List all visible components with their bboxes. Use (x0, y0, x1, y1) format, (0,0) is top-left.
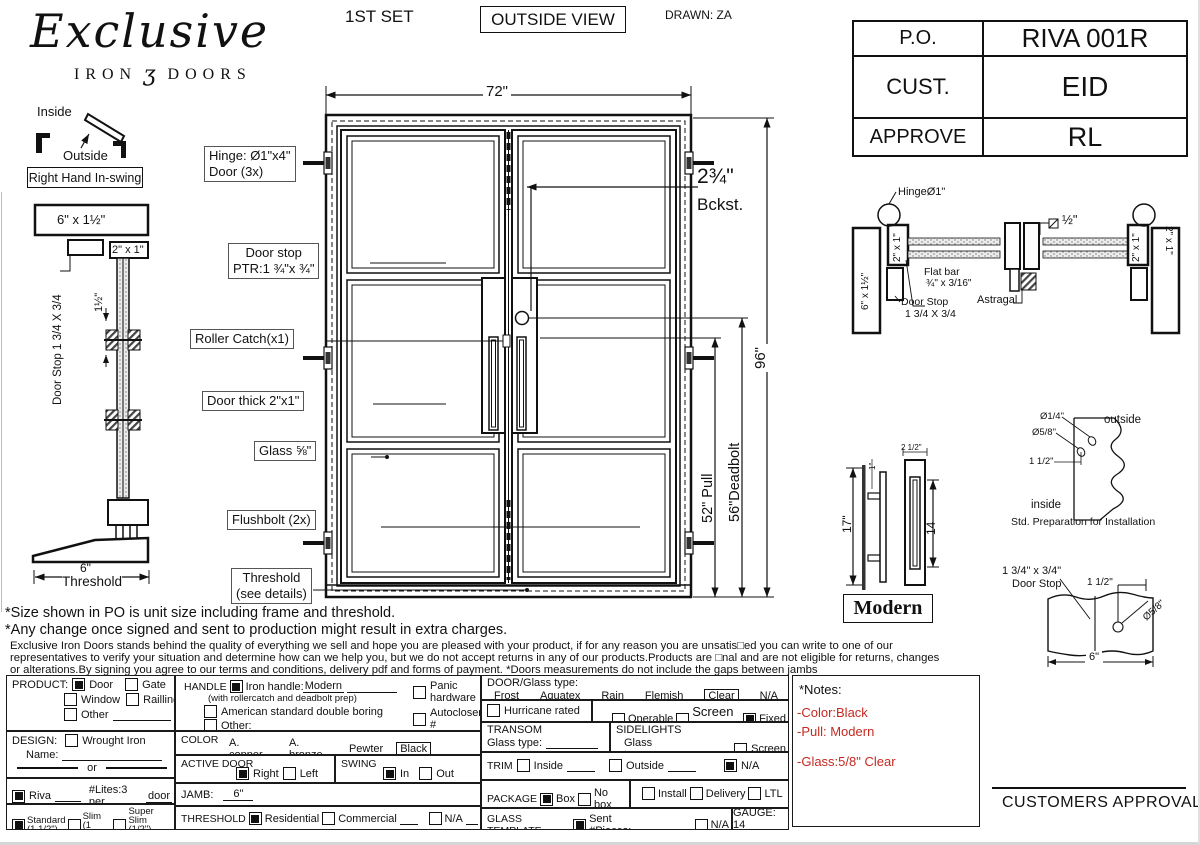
cust-label: CUST. (853, 56, 983, 118)
jamb-value: 6" (223, 788, 253, 801)
profile-standard-checkbox[interactable] (12, 819, 25, 831)
threshold-na-checkbox[interactable] (429, 812, 442, 825)
handle-other-checkbox[interactable] (204, 719, 217, 731)
deadbolt-height-dim: 56"Deadbolt (727, 443, 743, 522)
threshold-na-label: N/A (445, 813, 463, 825)
autocloser-checkbox[interactable] (413, 713, 426, 726)
sent-pieces-blank[interactable] (653, 819, 684, 830)
elevation-height-dim: 96" (752, 344, 769, 372)
prep-caption: Std. Preparation for Installation (1011, 516, 1155, 528)
color-selected[interactable]: Black (396, 742, 431, 755)
head-hinge-label: HingeØ1" (898, 186, 945, 198)
handle-iron-checkbox[interactable] (230, 680, 243, 693)
glass-template-na-checkbox[interactable] (695, 819, 708, 831)
riva-label: Riva (29, 790, 51, 802)
disclaimer-para-line1: Exclusive Iron Doors stands behind the q… (10, 640, 893, 652)
signature-line[interactable] (992, 787, 1186, 789)
form-cell-glass-template: GLASS TEMPLATE Sent #Pieces: N/A (481, 808, 732, 830)
form-cell-transom: TRANSOM Glass type: (481, 722, 610, 752)
pull-standoff-label: 1" (868, 463, 877, 470)
sidelights-screen-label: Screen (751, 743, 786, 752)
head-gap-dim: ½" (1062, 212, 1077, 227)
profile-superslim-label: Super Slim (128, 806, 153, 826)
operable-checkbox[interactable] (612, 713, 625, 723)
fixed-label: Fixed (759, 713, 786, 722)
screen-or-checkbox[interactable] (676, 713, 689, 723)
glass-callout: Glass ⅝" (254, 441, 316, 461)
threshold-callout: Threshold (see details) (231, 568, 312, 604)
form-cell-design: DESIGN: Wrought Iron Name: or (6, 731, 175, 778)
form-cell-riva: Riva #Lites:3 per door (6, 778, 175, 804)
handle-american-checkbox[interactable] (204, 705, 217, 718)
trim-inside-blank[interactable] (567, 760, 595, 772)
flat-bar-label-line2: ¾" x 3/16" (926, 278, 971, 289)
profile-head-dim: 6" x 1½" (57, 212, 105, 227)
view-label-box: OUTSIDE VIEW (480, 6, 626, 33)
profile-slim-checkbox[interactable] (68, 819, 81, 831)
prep-hole-small-label: Ø1/4" (1040, 411, 1064, 422)
or-divider-left (17, 767, 78, 768)
glass-opt-flemish: Flemish (645, 690, 684, 700)
style-name-box: Modern (843, 594, 933, 623)
form-cell-sidelights: SIDELIGHTS Glass type: Screen (610, 722, 789, 752)
cust-value: EID (983, 56, 1187, 118)
form-cell-shipping: Install Delivery LTL (630, 780, 789, 808)
disclaimer-line1: *Size shown in PO is unit size including… (5, 605, 395, 621)
pull-height-dim: 52" Pull (700, 474, 716, 523)
profile-superslim-checkbox[interactable] (113, 819, 126, 831)
fixed-checkbox[interactable] (743, 713, 756, 723)
product-other-label: Other (81, 709, 109, 721)
profile-superslim-sub: (1/2") SDL (128, 824, 151, 830)
po-label: P.O. (853, 21, 983, 56)
logo-subtitle: IRONʒDOORS (74, 62, 252, 87)
flat-bar-label-line1: Flat bar (924, 266, 960, 278)
glass-template-na-label: N/A (711, 819, 729, 830)
transom-glass-label: Glass type: (487, 737, 542, 749)
form-cell-swing: SWING In Out (335, 755, 481, 783)
form-cell-trim: TRIM Inside Outside N/A (481, 752, 789, 780)
profile-standard-sub: (1 1/2") (27, 824, 58, 830)
form-cell-active-door: ACTIVE DOOR Right Left (175, 755, 335, 783)
color-opt-copper: A. copper (229, 737, 276, 755)
note-glass: -Glass:5/8" Clear (797, 754, 979, 769)
riva-lites-value: door (146, 790, 172, 803)
product-other-checkbox[interactable] (64, 708, 77, 721)
package-box-checkbox[interactable] (540, 793, 553, 806)
threshold-residential-label: Residential (265, 813, 319, 825)
prep-hole-large-label: Ø5/8" (1032, 427, 1056, 438)
view-label: OUTSIDE VIEW (491, 10, 615, 30)
design-or-label: or (87, 762, 97, 774)
form-cell-color: COLOR A. copper A. bronze Pewter Black (175, 731, 481, 755)
handle-other-blank[interactable] (256, 720, 334, 732)
design-label: DESIGN: (12, 735, 57, 747)
product-door-checkbox[interactable] (72, 678, 85, 691)
ltl-label: LTL (764, 788, 782, 800)
hinge-callout: Hinge: Ø1"x4" Door (3x) (204, 146, 296, 182)
hinge-callout-line1: Hinge: Ø1"x4" (209, 148, 291, 164)
swing-label: SWING (341, 758, 377, 770)
package-label: PACKAGE (487, 793, 537, 805)
trim-inside-label: Inside (534, 760, 563, 772)
install-label: Install (658, 788, 687, 800)
handle-iron-value: Modern (303, 680, 344, 693)
trim-outside-blank[interactable] (668, 760, 696, 772)
swing-caption-box: Right Hand In-swing (27, 167, 143, 188)
form-cell-gauge: GAUGE: 14 (732, 808, 789, 830)
product-railing-checkbox[interactable] (126, 693, 139, 706)
door-elevation-drawing (300, 80, 800, 610)
head-right-jamb-dim: 2" x 1" (1163, 226, 1174, 255)
install-checkbox[interactable] (642, 787, 655, 800)
color-label: COLOR (181, 734, 218, 746)
form-cell-package: PACKAGE Box No box (481, 780, 630, 808)
panic-label: Panic hardware (430, 680, 481, 704)
head-right-stile-dim: 2" x 1" (1131, 233, 1142, 262)
profile-door-stop-label: Door Stop 1 3/4 X 3/4 (52, 294, 64, 405)
handle-label: HANDLE (184, 681, 227, 693)
delivery-label: Delivery (706, 788, 746, 800)
order-drawing-page: Exclusive IRONʒDOORS 1ST SET OUTSIDE VIE… (0, 0, 1200, 845)
sidelights-screen-checkbox[interactable] (734, 743, 747, 753)
elevation-width-dim: 72" (483, 83, 511, 100)
stop-size-label: 1 3/4" x 3/4" (1002, 565, 1061, 577)
backset-dim: 2¾" (697, 165, 734, 189)
swing-out-checkbox[interactable] (419, 767, 432, 780)
form-cell-glass-type: DOOR/Glass type: Frost Aquatex Rain Flem… (481, 675, 789, 700)
prep-outside-label: outside (1104, 414, 1141, 426)
design-wrought-checkbox[interactable] (65, 734, 78, 747)
door-stop-callout-line1: Door stop (233, 245, 314, 261)
glass-opt-rain: Rain (601, 690, 624, 700)
active-right-label: Right (253, 768, 279, 780)
product-other-blank[interactable] (113, 709, 171, 721)
glass-type-label: DOOR/Glass type: (487, 677, 578, 689)
sidelights-glass-label: Glass type: (624, 737, 677, 752)
product-window-checkbox[interactable] (64, 693, 77, 706)
sent-pieces-label: Sent #Pieces: (589, 813, 650, 830)
swing-inside-label: Inside (37, 104, 72, 119)
astragal-label: Astragal (977, 294, 1017, 306)
hurricane-label: Hurricane rated (504, 705, 580, 717)
glass-opt-na: N/A (760, 690, 778, 700)
product-door-label: Door (89, 679, 113, 691)
active-left-label: Left (300, 768, 318, 780)
package-box-label: Box (556, 793, 575, 805)
swing-in-label: In (400, 768, 409, 780)
swing-in-checkbox[interactable] (383, 767, 396, 780)
head-door-stop-line2: 1 3/4 X 3/4 (905, 308, 956, 320)
handle-american-label: American standard double boring (221, 706, 383, 718)
roller-catch-callout: Roller Catch(x1) (190, 329, 294, 349)
notes-box: *Notes: -Color:Black -Pull: Modern -Glas… (792, 675, 980, 827)
backset-label: Bckst. (697, 195, 743, 215)
drawn-by-label: DRAWN: ZA (665, 8, 732, 22)
form-cell-profile: Standard (1 1/2") Slim (1 1/4") Super Sl… (6, 804, 175, 830)
threshold-commercial-checkbox[interactable] (322, 812, 335, 825)
panic-checkbox[interactable] (413, 686, 426, 699)
threshold-na-blank[interactable] (466, 813, 478, 825)
prep-offset-label: 1 1/2" (1029, 456, 1054, 467)
logo-sub-right: DOORS (168, 66, 252, 84)
logo-ampersand-glyph: ʒ (143, 62, 161, 87)
threshold-width-dim: 6" (80, 561, 91, 575)
trim-na-checkbox[interactable] (724, 759, 737, 772)
design-name-blank[interactable] (62, 749, 162, 761)
or-divider-right (106, 767, 167, 768)
po-value: RIVA 001R (983, 21, 1187, 56)
set-label: 1ST SET (345, 7, 414, 27)
stop-width-dim: 6" (1086, 651, 1102, 663)
trim-inside-checkbox[interactable] (517, 759, 530, 772)
jamb-label: JAMB: (181, 789, 213, 801)
pull-height-label: 17" (840, 515, 854, 533)
swing-out-label: Out (436, 768, 454, 780)
form-cell-hurricane: Hurricane rated (481, 700, 592, 722)
transom-label: TRANSOM (487, 724, 542, 736)
product-label: PRODUCT: (12, 679, 68, 691)
notes-title: *Notes: (799, 682, 979, 697)
order-table: P.O. RIVA 001R CUST. EID APPROVE RL (852, 20, 1188, 157)
glass-opt-aquatex: Aquatex (540, 690, 580, 700)
active-left-checkbox[interactable] (283, 767, 296, 780)
door-thickness-callout: Door thick 2"x1" (202, 391, 304, 411)
logo-script: Exclusive (30, 4, 269, 58)
swing-outside-label: Outside (63, 148, 108, 163)
product-window-label: Window (81, 694, 120, 706)
threshold-commercial-blank[interactable] (400, 813, 418, 825)
product-gate-label: Gate (142, 679, 166, 691)
stop-name-label: Door Stop (1012, 578, 1062, 590)
package-nobox-checkbox[interactable] (578, 793, 591, 806)
threshold-callout-line1: Threshold (236, 570, 307, 586)
package-nobox-label: No box (594, 787, 627, 808)
design-wrought-label: Wrought Iron (82, 735, 145, 747)
transom-glass-blank[interactable] (546, 737, 598, 749)
handle-other-label: Other: (221, 720, 252, 732)
form-cell-jamb: JAMB: 6" (175, 783, 481, 806)
riva-lites-label: #Lites:3 per (89, 784, 142, 804)
ltl-checkbox[interactable] (748, 787, 761, 800)
style-name: Modern (854, 597, 923, 620)
sidelights-glass-blank[interactable] (681, 743, 722, 752)
product-railing-label: Railling (143, 694, 175, 706)
handle-iron-label: Iron handle: (246, 681, 304, 693)
note-color: -Color:Black (797, 705, 979, 720)
color-opt-pewter: Pewter (349, 743, 383, 755)
note-pull: -Pull: Modern (797, 724, 979, 739)
glass-template-label: GLASS TEMPLATE (487, 813, 570, 830)
threshold-callout-line2: (see details) (236, 586, 307, 602)
door-stop-callout: Door stop PTR:1 ¾"x ¾" (228, 243, 319, 279)
handle-note: (with rollercatch and deadbolt prep) (208, 693, 357, 704)
customers-approval-label: CUSTOMERS APPROVAL (1002, 794, 1200, 812)
door-stop-callout-line2: PTR:1 ¾"x ¾" (233, 261, 314, 277)
head-left-stile-dim: 2" x 1" (892, 233, 903, 262)
autocloser-label: Autocloser # (430, 707, 481, 731)
trim-na-label: N/A (741, 760, 759, 772)
profile-stop-gap-dim: 1½" (93, 293, 105, 312)
sidelights-label: SIDELIGHTS (616, 724, 681, 736)
hinge-callout-line2: Door (3x) (209, 164, 291, 180)
sent-pieces-checkbox[interactable] (573, 819, 586, 831)
logo-sub-left: IRON (74, 66, 137, 84)
operable-label: Operable (628, 713, 673, 722)
color-blank[interactable] (444, 743, 478, 755)
hurricane-checkbox[interactable] (487, 704, 500, 717)
glass-opt-frost: Frost (494, 690, 519, 700)
active-right-checkbox[interactable] (236, 767, 249, 780)
delivery-checkbox[interactable] (690, 787, 703, 800)
gauge-label: GAUGE: 14 (733, 808, 788, 830)
trim-outside-label: Outside (626, 760, 664, 772)
side-profile-drawing (10, 195, 165, 603)
product-gate-checkbox[interactable] (125, 678, 138, 691)
prep-inside-label: inside (1031, 499, 1061, 511)
design-name-label: Name: (26, 749, 58, 761)
form-cell-threshold: THRESHOLD Residential Commercial N/A (175, 806, 481, 830)
trim-label: TRIM (487, 760, 513, 772)
handle-iron-blank[interactable] (347, 681, 397, 693)
page-edge-line (1, 192, 2, 612)
approve-value: RL (983, 118, 1187, 156)
form-cell-operable: Operable Screen or Fixed (592, 700, 789, 722)
swing-caption: Right Hand In-swing (29, 171, 142, 185)
form-cell-handle: HANDLE Iron handle:Modern (with rollerca… (175, 675, 481, 731)
profile-stile-dim: 2" x 1" (112, 244, 144, 256)
screen-or-label: Screen or (692, 704, 740, 722)
flushbolt-callout: Flushbolt (2x) (227, 510, 316, 530)
disclaimer-line2: *Any change once signed and sent to prod… (5, 622, 507, 638)
head-door-stop-line1: Door Stop (901, 296, 948, 308)
head-left-jamb-dim: 6" x 1½" (860, 273, 871, 310)
glass-selected[interactable]: Clear (704, 689, 738, 700)
threshold-commercial-label: Commercial (338, 813, 397, 825)
pull-slot-label: 14 (924, 522, 938, 535)
form-cell-product: PRODUCT: Door Gate Window Railling Other (6, 675, 175, 731)
color-opt-bronze: A. bronze (289, 737, 336, 755)
threshold-label: THRESHOLD (181, 813, 246, 825)
pull-width-label: 2 1/2" (901, 443, 922, 452)
approve-label: APPROVE (853, 118, 983, 156)
threshold-residential-checkbox[interactable] (249, 812, 262, 825)
disclaimer-para-line2: representatives to verify your situation… (10, 652, 939, 664)
riva-checkbox[interactable] (12, 790, 25, 803)
trim-outside-checkbox[interactable] (609, 759, 622, 772)
riva-blank[interactable] (55, 790, 81, 802)
stop-offset-dim: 1 1/2" (1087, 577, 1113, 588)
threshold-profile-label: Threshold (62, 574, 122, 589)
